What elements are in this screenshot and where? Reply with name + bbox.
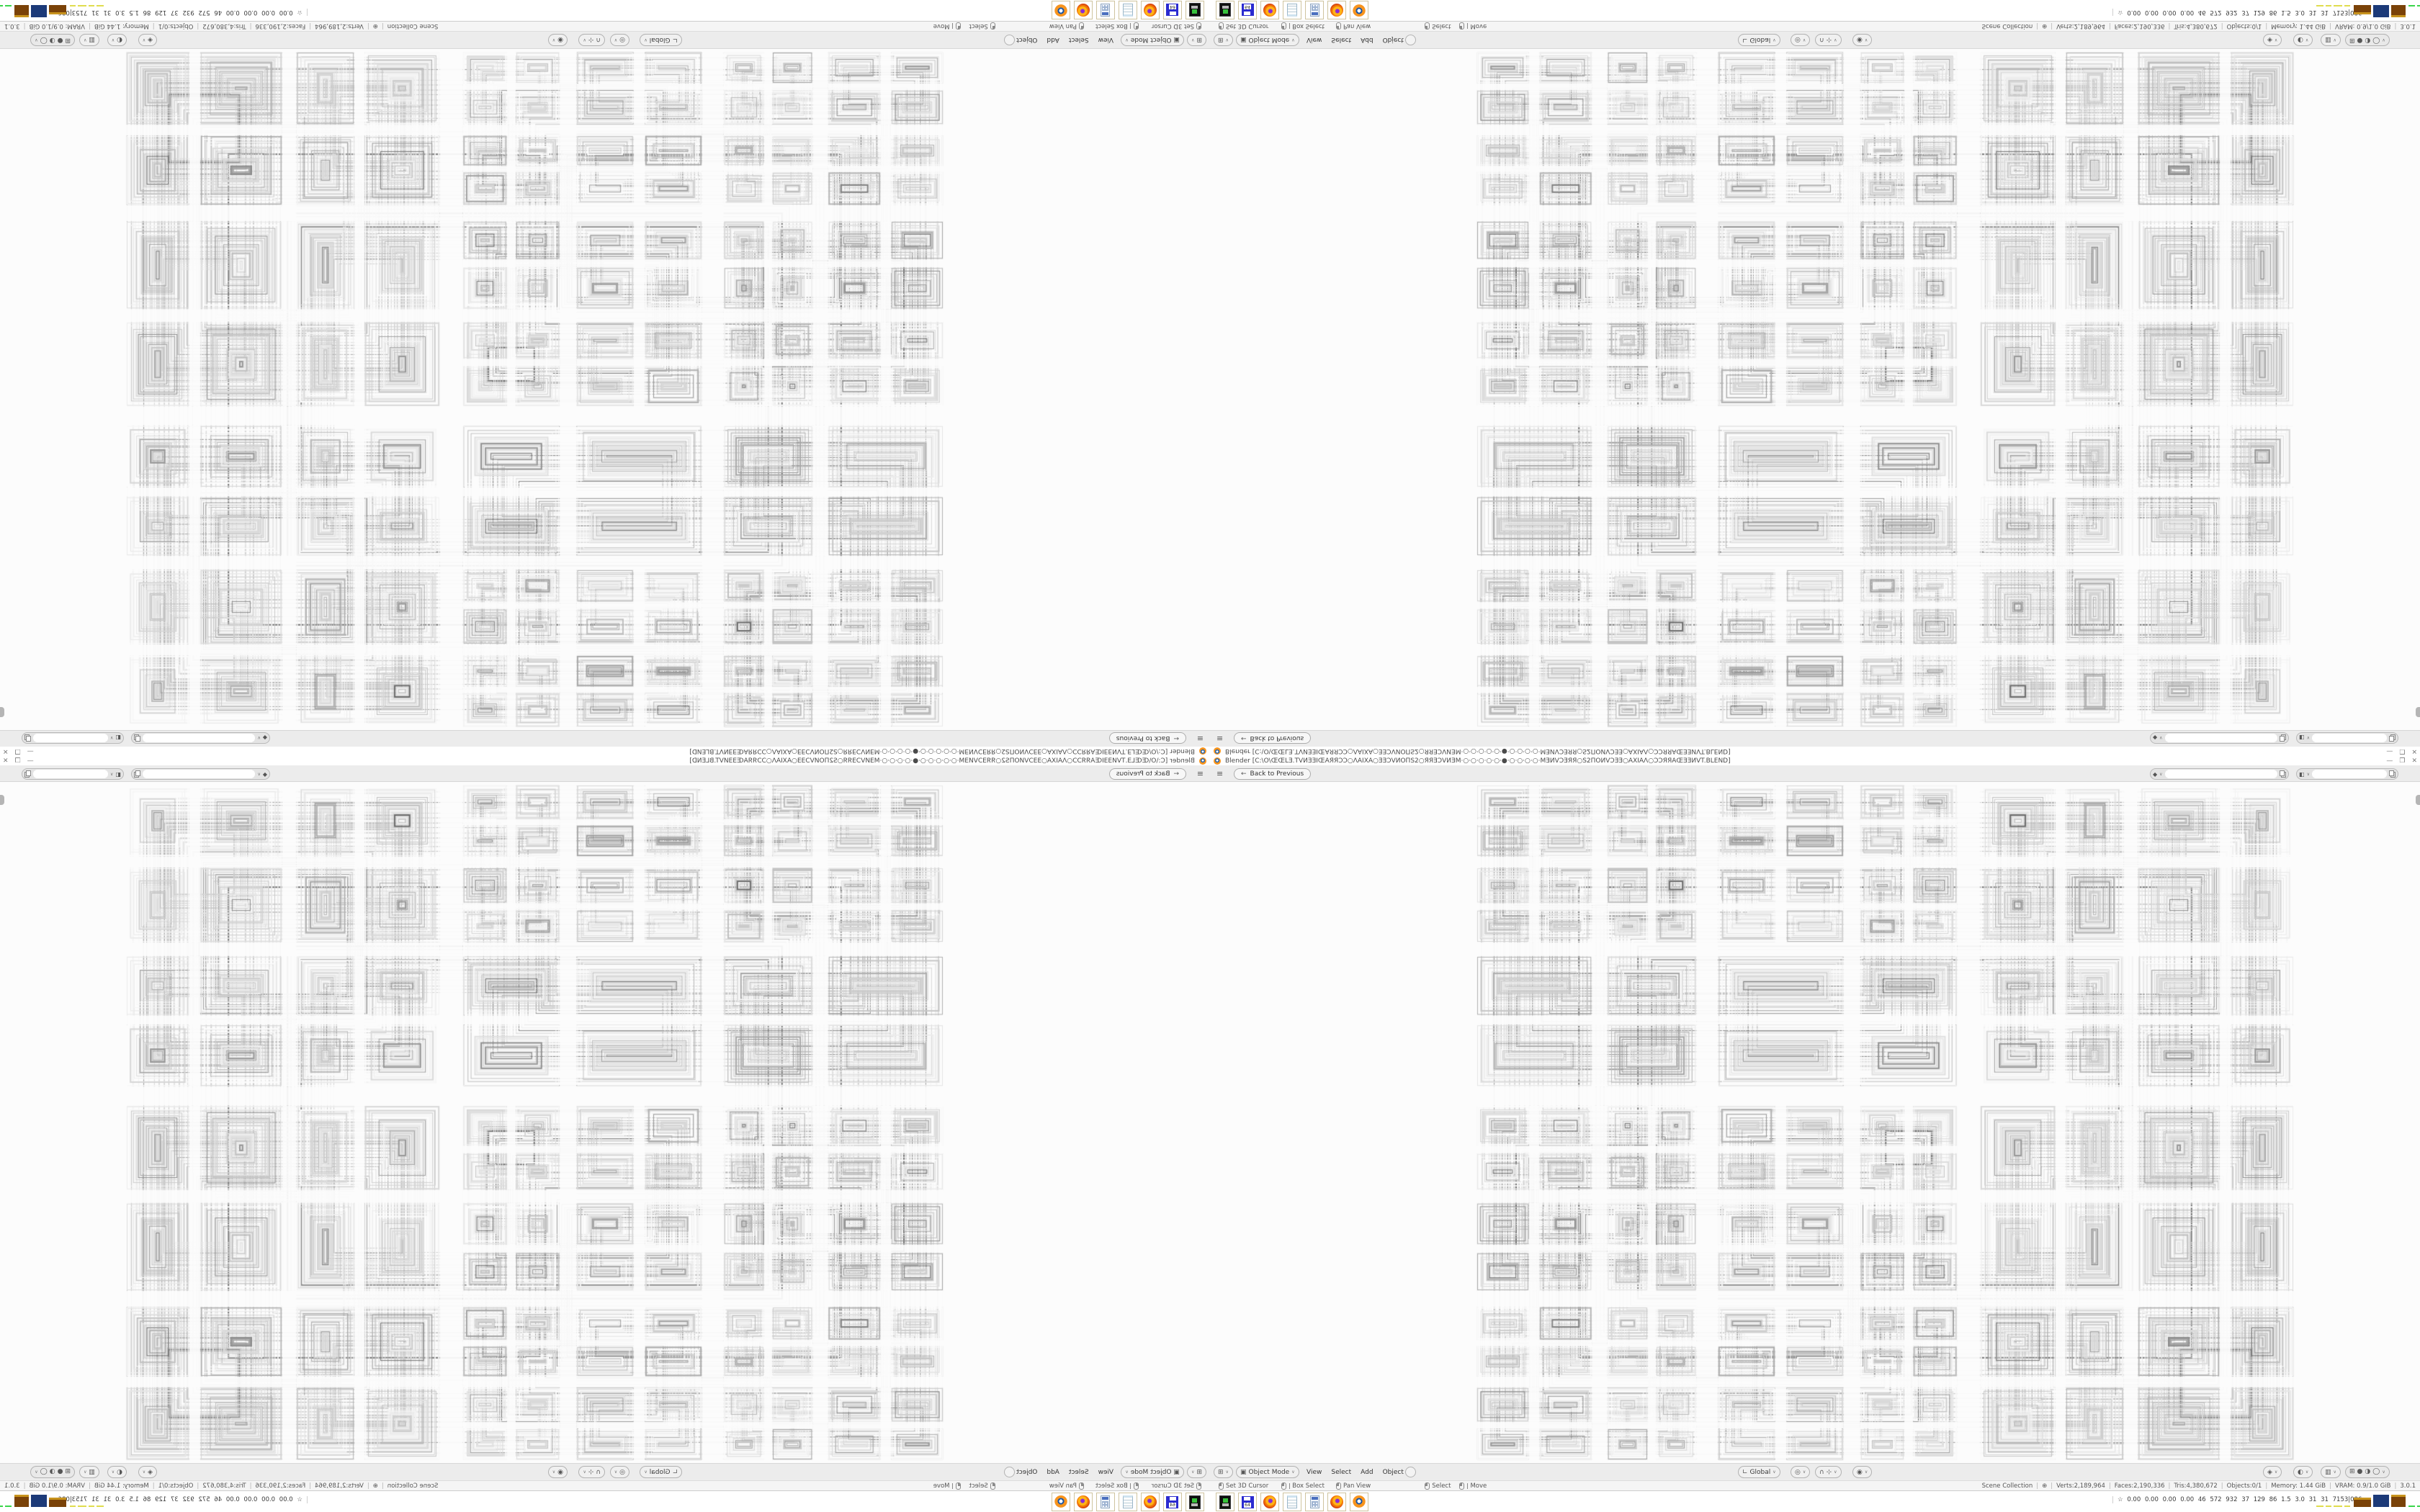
notepad-icon[interactable] — [1119, 1493, 1137, 1511]
shading-mode-1-button[interactable]: ● — [2357, 34, 2363, 46]
restore-button[interactable]: ❐ — [2399, 746, 2405, 756]
viewport-menu-select[interactable]: Select — [1069, 36, 1089, 43]
console-icon[interactable] — [1216, 1, 1234, 19]
viewport-header: ⊞ ∨ ▣ Object Mode ∨ ViewSelectAddObject … — [1210, 32, 2420, 49]
console-icon[interactable] — [1186, 1493, 1204, 1511]
chevron-down-icon: ∨ — [1191, 37, 1194, 42]
copy-icon[interactable] — [2389, 770, 2396, 778]
magnet-icon: ∩ — [596, 1469, 601, 1476]
chevron-down-icon: ∨ — [257, 736, 260, 741]
overlays-icon: ◐ — [2298, 1469, 2303, 1476]
stat-segment: Verts:2,189,964 — [2056, 1482, 2105, 1490]
xray-toggle-button[interactable]: ▥ ∨ — [2321, 1466, 2341, 1478]
calculator-icon[interactable] — [1305, 1, 1324, 19]
view-layer-selector[interactable]: ◧ ∨ — [22, 768, 124, 780]
scene-name-input[interactable] — [143, 770, 255, 778]
keymap-hint: Move — [1459, 22, 1487, 30]
pivot-icon: ◎ — [1795, 1469, 1801, 1476]
transform-orientation-dropdown[interactable]: ∟ Global ∨ — [1738, 34, 1780, 46]
snapping-button[interactable]: ∩ ⊹ ∨ — [578, 34, 605, 46]
copy-icon[interactable] — [24, 770, 31, 778]
usage-graph-bar — [0, 5, 3, 6]
blender-icon — [1353, 4, 1366, 17]
viewport-3d[interactable] — [0, 49, 1210, 730]
shading-mode-0-button[interactable]: ⊞ — [2349, 1466, 2355, 1478]
scene-selector[interactable]: ◆ ∨ — [2150, 768, 2289, 780]
xray-toggle-button[interactable]: ▥ ∨ — [2321, 34, 2341, 46]
viewport-3d[interactable] — [1210, 49, 2420, 730]
keymap-hint-label: Move — [933, 1482, 950, 1490]
scene-name-input[interactable] — [143, 734, 255, 742]
scene-name-input[interactable] — [2165, 734, 2277, 742]
mouse-button-icon — [990, 1482, 995, 1490]
editor-type-button[interactable]: ⊞ ∨ — [1214, 34, 1233, 46]
close-button[interactable]: ✕ — [3, 746, 9, 756]
system-tray-graph — [2316, 5, 2420, 17]
stat-separator: | — [250, 1482, 252, 1490]
window-titlebar[interactable]: Blender [C:\O\ŒŒLƎ.TVИƎƎIŒAЯЯƆƆ○ΛAIXA○ƎƎ… — [0, 746, 1210, 756]
console-icon[interactable] — [1186, 1, 1204, 19]
transform-orientation-dropdown[interactable]: ∟ Global ∨ — [640, 1466, 682, 1478]
mouse-button-icon — [1336, 1482, 1341, 1490]
system-tray-graph — [0, 5, 104, 17]
grease-pencil-circle-button[interactable] — [1004, 1467, 1015, 1477]
floppy-64-icon[interactable]: 64 — [1163, 1493, 1182, 1511]
overlays-button[interactable]: ◐ ∨ — [107, 1466, 127, 1478]
stat-segment: ⊕ — [2042, 22, 2047, 30]
usage-graph-bar — [2408, 5, 2415, 6]
mouse-button-icon — [1425, 1482, 1430, 1490]
grease-pencil-circle-button[interactable] — [1405, 35, 1416, 45]
pivot-point-button[interactable]: ◎ ∨ — [1791, 1466, 1810, 1478]
proportional-icon: ◉ — [1857, 1469, 1863, 1476]
chevron-down-icon: ∨ — [644, 1470, 647, 1475]
shading-mode-3-button[interactable]: ◯ — [40, 34, 48, 46]
keymap-hint-label: Box Select — [1292, 22, 1325, 30]
copy-icon[interactable] — [2389, 734, 2396, 742]
blender-window: Blender [C:\O\ŒŒLƎ.TVИƎƎIŒAЯЯƆƆ○ΛAIXA○ƎƎ… — [1210, 756, 2420, 1512]
stat-segment: Memory: 1.44 GiB — [2271, 1482, 2326, 1490]
proportional-edit-button[interactable]: ◉ ∨ — [1852, 34, 1872, 46]
taskbar: 64 ☆ 0.00 0.00 0.00 0.00 46 572 932 37 1… — [1210, 0, 2420, 22]
usage-graph-bar — [2334, 5, 2342, 6]
notepad-icon[interactable] — [1119, 1, 1137, 19]
fullscreen-header-row: ≡ ← Back to Previous ◆ ∨ ◧ ∨ — [1210, 730, 2420, 746]
window-titlebar[interactable]: Blender [C:\O\ŒŒLƎ.TVИƎƎIŒAЯЯƆƆ○ΛAIXA○ƎƎ… — [1210, 746, 2420, 756]
mode-dropdown[interactable]: ▣ Object Mode ∨ — [1236, 1466, 1299, 1478]
stat-separator: | — [2329, 1482, 2331, 1490]
chevron-down-icon: ∨ — [614, 37, 617, 42]
proportional-icon: ◉ — [557, 1469, 563, 1476]
minimize-button[interactable]: — — [27, 756, 34, 766]
mode-dropdown[interactable]: ▣ Object Mode ∨ — [1236, 34, 1299, 46]
copy-icon[interactable] — [134, 770, 140, 778]
firefox-icon — [1330, 1495, 1343, 1508]
floppy-64-icon[interactable]: 64 — [1238, 1493, 1257, 1511]
mouse-drag-icon — [1289, 23, 1290, 29]
stat-separator: | — [2329, 22, 2331, 30]
viewport-menu-view[interactable]: View — [1307, 1469, 1322, 1476]
blender-icon[interactable] — [1350, 1, 1368, 19]
gizmo-icon: ◈ — [2267, 37, 2272, 44]
chevron-down-icon: ∨ — [552, 37, 555, 42]
scene-stats: Scene Collection|⊕|Verts:2,189,964|Faces… — [4, 1481, 438, 1491]
copy-icon[interactable] — [24, 734, 31, 742]
stat-separator: | — [382, 1482, 384, 1490]
window-controls: — ❐ ✕ — [3, 756, 34, 766]
notepad-icon[interactable] — [1283, 1, 1301, 19]
sidebar-toggle-tab[interactable] — [0, 795, 4, 805]
pivot-point-button[interactable]: ◎ ∨ — [610, 1466, 629, 1478]
viewport-menu-object[interactable]: Object — [1383, 1469, 1404, 1476]
keymap-hint-label: Pan View — [1343, 22, 1371, 30]
viewport-menu-object[interactable]: Object — [1016, 1469, 1037, 1476]
view-layer-selector[interactable]: ◧ ∨ — [22, 732, 124, 744]
shading-mode-1-button[interactable]: ● — [58, 34, 63, 46]
stat-segment: Tris:4,380,672 — [2174, 22, 2217, 30]
viewport-menu-select[interactable]: Select — [1331, 36, 1351, 43]
mode-label: Object Mode — [1131, 1469, 1172, 1476]
mouse-button-icon — [1281, 1482, 1286, 1490]
shading-mode-2-button[interactable]: ◑ — [2365, 1466, 2370, 1478]
console-icon — [1189, 4, 1201, 17]
window-title: Blender [C:\O\ŒŒLƎ.TVИƎƎIŒAЯЯƆƆ○ΛAIXA○ƎƎ… — [689, 748, 1195, 755]
usage-graph-bar — [2344, 1506, 2350, 1507]
pivot-point-button[interactable]: ◎ ∨ — [610, 34, 629, 46]
blender-icon[interactable] — [1052, 1493, 1070, 1511]
usage-graph-bar — [49, 1498, 66, 1507]
back-to-previous-button[interactable]: ← Back to Previous — [1109, 768, 1186, 780]
overlays-button[interactable]: ◐ ∨ — [2293, 1466, 2313, 1478]
chevron-down-icon: ∨ — [257, 772, 260, 777]
mouse-button-icon — [990, 22, 995, 30]
back-to-previous-label: Back to Previous — [1116, 734, 1170, 742]
floppy-64-icon: 64 — [1167, 1496, 1179, 1508]
menu-icon[interactable]: ≡ — [1216, 734, 1223, 743]
stat-segment: Faces:2,190,336 — [255, 1482, 305, 1490]
floppy-label: 64 — [1244, 1503, 1251, 1508]
keymap-hint-label: Select — [1432, 1482, 1451, 1490]
shading-mode-group: ⊞●◑◯∨ — [2345, 34, 2390, 46]
keymap-hint-label: Select — [969, 1482, 988, 1490]
scene-name-input[interactable] — [2165, 770, 2277, 778]
snapping-button[interactable]: ∩ ⊹ ∨ — [1815, 34, 1842, 46]
chevron-down-icon: ∨ — [2305, 37, 2308, 42]
editor-type-button[interactable]: ⊞ ∨ — [1214, 1466, 1233, 1478]
orientation-icon: ∟ — [1742, 1469, 1748, 1476]
shading-mode-0-button[interactable]: ⊞ — [2349, 34, 2355, 46]
transform-orientation-dropdown[interactable]: ∟ Global ∨ — [1738, 1466, 1780, 1478]
calculator-icon[interactable] — [1096, 1, 1115, 19]
editor-type-button[interactable]: ⊞ ∨ — [1187, 34, 1206, 46]
notepad-icon[interactable] — [1283, 1493, 1301, 1511]
copy-icon[interactable] — [2280, 770, 2286, 778]
usage-graph-bar — [2373, 5, 2389, 17]
mouse-button-icon — [1219, 22, 1224, 30]
shading-mode-3-button[interactable]: ◯ — [2372, 1466, 2380, 1478]
viewport-menu-select[interactable]: Select — [1069, 1469, 1089, 1476]
chevron-down-icon: ∨ — [1803, 1470, 1806, 1475]
minimize-button[interactable]: — — [27, 746, 34, 756]
back-to-previous-button[interactable]: ← Back to Previous — [1234, 768, 1311, 780]
viewport-menu-add[interactable]: Add — [1047, 1469, 1059, 1476]
viewport-menus: ViewSelectAddObject — [1307, 1464, 1404, 1481]
stat-segment: Verts:2,189,964 — [315, 1482, 364, 1490]
keymap-hint-label: Set 3D Cursor — [1226, 22, 1268, 30]
show-gizmo-button[interactable]: ◈ ∨ — [138, 34, 157, 46]
firefox-icon[interactable] — [1141, 1493, 1160, 1511]
keymap-hint-label: Select — [1432, 22, 1451, 30]
snapping-button[interactable]: ∩ ⊹ ∨ — [1815, 1466, 1842, 1478]
firefox-icon[interactable] — [1260, 1493, 1279, 1511]
stat-segment: ⊕ — [2042, 1482, 2047, 1490]
overlays-icon: ◐ — [2298, 37, 2303, 44]
orientation-label: Global — [650, 37, 671, 44]
mode-label: Object Mode — [1249, 1469, 1290, 1476]
sidebar-toggle-tab[interactable] — [0, 707, 4, 717]
stat-separator: | — [2051, 22, 2053, 30]
firefox-icon — [1144, 4, 1157, 17]
window-copy-top-left-rotated: Blender [C:\O\ŒŒLƎ.TVИƎƎIŒAЯЯƆƆ○ΛAIXA○ƎƎ… — [0, 0, 1210, 756]
xray-icon: ▥ — [89, 1469, 95, 1476]
view-layer-selector[interactable]: ◧ ∨ — [2296, 732, 2398, 744]
snap-target-icon: ⊹ — [588, 37, 594, 44]
usage-graph-bar — [70, 5, 76, 6]
xray-icon: ▥ — [89, 37, 95, 44]
view-layer-input[interactable] — [2312, 734, 2387, 742]
firefox-icon[interactable] — [1074, 1, 1093, 19]
chevron-down-icon: ∨ — [2307, 736, 2310, 741]
floppy-label: 64 — [1169, 5, 1176, 10]
scene-selector[interactable]: ◆ ∨ — [2150, 732, 2289, 744]
mode-dropdown[interactable]: ▣ Object Mode ∨ — [1121, 34, 1184, 46]
object-mode-icon: ▣ — [1173, 1469, 1180, 1476]
keymap-hint-label: Box Select — [1095, 1482, 1128, 1490]
object-mode-icon: ▣ — [1240, 1469, 1247, 1476]
view-layer-input[interactable] — [33, 734, 108, 742]
viewport-menu-add[interactable]: Add — [1361, 36, 1373, 43]
viewport-3d[interactable] — [1210, 782, 2420, 1463]
keymap-hint-label: Move — [1470, 1482, 1487, 1490]
calculator-icon[interactable] — [1096, 1493, 1115, 1511]
firefox-icon — [1077, 4, 1090, 17]
notepad-icon — [1287, 4, 1297, 17]
grease-pencil-circle-button[interactable] — [1004, 35, 1015, 45]
magnet-icon: ∩ — [596, 37, 601, 44]
show-gizmo-button[interactable]: ◈ ∨ — [2263, 34, 2282, 46]
shading-mode-1-button[interactable]: ● — [2357, 1466, 2363, 1478]
transform-orientation-dropdown[interactable]: ∟ Global ∨ — [640, 34, 682, 46]
fullscreen-header-row: ≡ ← Back to Previous ◆ ∨ ◧ ∨ — [0, 730, 1210, 746]
floppy-64-icon[interactable]: 64 — [1163, 1, 1182, 19]
menu-icon[interactable]: ≡ — [1216, 769, 1223, 778]
view-layer-input[interactable] — [2312, 770, 2387, 778]
usage-graph-bar — [2391, 5, 2406, 17]
view-layer-selector[interactable]: ◧ ∨ — [2296, 768, 2398, 780]
firefox-icon[interactable] — [1260, 1, 1279, 19]
blender-logo-icon — [1199, 757, 1206, 765]
shading-mode-1-button[interactable]: ● — [58, 1466, 63, 1478]
view-layer-input[interactable] — [33, 770, 108, 778]
pivot-icon: ◎ — [619, 1469, 625, 1476]
chevron-down-icon: ∨ — [1291, 37, 1294, 42]
keymap-hint: Set 3D Cursor — [1219, 1482, 1268, 1490]
viewport-menus: ViewSelectAddObject — [1307, 31, 1404, 48]
scene-selector[interactable]: ◆ ∨ — [131, 732, 270, 744]
orientation-label: Global — [1750, 37, 1771, 44]
shading-mode-2-button[interactable]: ◑ — [50, 34, 55, 46]
minimize-button[interactable]: — — [2386, 756, 2393, 766]
blender-window: Blender [C:\O\ŒŒLƎ.TVИƎƎIŒAЯЯƆƆ○ΛAIXA○ƎƎ… — [0, 756, 1210, 1512]
usage-graph-bar — [70, 1506, 76, 1507]
chevron-down-icon: ∨ — [110, 772, 113, 777]
mode-dropdown[interactable]: ▣ Object Mode ∨ — [1121, 1466, 1184, 1478]
viewport-editor-icon: ⊞ — [1218, 1469, 1224, 1476]
chevron-down-icon: ∨ — [2382, 1470, 2385, 1475]
usage-graph-bar — [78, 1506, 86, 1507]
back-to-previous-label: Back to Previous — [1116, 770, 1170, 778]
mouse-drag-icon — [1130, 1483, 1131, 1489]
chevron-down-icon: ∨ — [1226, 37, 1229, 42]
pivot-point-button[interactable]: ◎ ∨ — [1791, 34, 1810, 46]
editor-type-button[interactable]: ⊞ ∨ — [1187, 1466, 1206, 1478]
window-titlebar[interactable]: Blender [C:\O\ŒŒLƎ.TVИƎƎIŒAЯЯƆƆ○ΛAIXA○ƎƎ… — [1210, 756, 2420, 766]
shading-mode-0-button[interactable]: ⊞ — [65, 34, 71, 46]
viewport-render-canvas[interactable] — [0, 49, 1210, 730]
keymap-hint-label: Move — [1470, 22, 1487, 30]
viewport-menu-object[interactable]: Object — [1016, 36, 1037, 43]
minimize-button[interactable]: — — [2386, 746, 2393, 756]
overlays-icon: ◐ — [117, 1469, 122, 1476]
snapping-button[interactable]: ∩ ⊹ ∨ — [578, 1466, 605, 1478]
usage-graph-bar — [89, 1506, 94, 1507]
viewport-menu-object[interactable]: Object — [1383, 36, 1404, 43]
chevron-down-icon: ∨ — [1865, 37, 1868, 42]
viewport-menu-add[interactable]: Add — [1047, 36, 1059, 43]
proportional-edit-button[interactable]: ◉ ∨ — [1852, 1466, 1872, 1478]
window-title: Blender [C:\O\ŒŒLƎ.TVИƎƎIŒAЯЯƆƆ○ΛAIXA○ƎƎ… — [1225, 757, 1731, 765]
sidebar-toggle-tab[interactable] — [2416, 707, 2420, 717]
shading-mode-2-button[interactable]: ◑ — [50, 1466, 55, 1478]
keymap-hint: Pan View — [1049, 1482, 1084, 1490]
viewport-menu-select[interactable]: Select — [1331, 1469, 1351, 1476]
menu-icon[interactable]: ≡ — [1197, 734, 1204, 743]
grease-pencil-circle-button[interactable] — [1405, 1467, 1416, 1477]
close-button[interactable]: ✕ — [2411, 756, 2417, 766]
calculator-icon — [1101, 1495, 1111, 1508]
show-gizmo-button[interactable]: ◈ ∨ — [2263, 1466, 2282, 1478]
viewport-menu-add[interactable]: Add — [1361, 1469, 1373, 1476]
stat-segment: 3.0.1 — [4, 22, 20, 30]
menu-icon[interactable]: ≡ — [1197, 769, 1204, 778]
xray-toggle-button[interactable]: ▥ ∨ — [79, 34, 99, 46]
chevron-down-icon: ∨ — [1773, 1470, 1775, 1475]
firefox-icon[interactable] — [1141, 1, 1160, 19]
scene-icon: ◆ — [2153, 771, 2157, 778]
stat-separator: | — [2265, 22, 2267, 30]
overlays-button[interactable]: ◐ ∨ — [2293, 34, 2313, 46]
restore-button[interactable]: ❐ — [15, 756, 21, 766]
stat-segment: Faces:2,190,336 — [2115, 1482, 2165, 1490]
overlays-button[interactable]: ◐ ∨ — [107, 34, 127, 46]
object-mode-icon: ▣ — [1240, 37, 1247, 44]
keymap-hints: Set 3D CursorBox SelectPan ViewSelectMov… — [1216, 21, 1487, 31]
chevron-down-icon: ∨ — [84, 1470, 86, 1475]
chevron-down-icon: ∨ — [1834, 37, 1837, 42]
viewport-menu-view[interactable]: View — [1098, 1469, 1113, 1476]
blender-logo-icon — [1199, 748, 1206, 755]
shading-mode-0-button[interactable]: ⊞ — [65, 1466, 71, 1478]
usage-graph-bar — [49, 5, 66, 14]
firefox-icon[interactable] — [1074, 1493, 1093, 1511]
magnet-icon: ∩ — [1819, 1469, 1824, 1476]
keymap-hint-label: Select — [969, 22, 988, 30]
viewport-render-canvas[interactable] — [1210, 49, 2420, 730]
stat-separator: | — [89, 1482, 91, 1490]
restore-button[interactable]: ❐ — [15, 746, 21, 756]
viewport-menu-view[interactable]: View — [1307, 36, 1322, 43]
usage-graph-bar — [97, 1506, 104, 1507]
viewport-3d[interactable] — [0, 782, 1210, 1463]
shading-mode-3-button[interactable]: ◯ — [40, 1466, 48, 1478]
keymap-hint: Select — [969, 1482, 995, 1490]
viewport-menu-view[interactable]: View — [1098, 36, 1113, 43]
copy-icon[interactable] — [2280, 734, 2286, 742]
restore-button[interactable]: ❐ — [2399, 756, 2405, 766]
back-to-previous-button[interactable]: ← Back to Previous — [1109, 732, 1186, 744]
pivot-icon: ◎ — [619, 37, 625, 44]
blender-icon[interactable] — [1350, 1493, 1368, 1511]
chevron-down-icon: ∨ — [2334, 1470, 2336, 1475]
viewport-editor-icon: ⊞ — [1196, 37, 1202, 44]
shading-mode-3-button[interactable]: ◯ — [2372, 34, 2380, 46]
shading-mode-2-button[interactable]: ◑ — [2365, 34, 2370, 46]
calculator-icon[interactable] — [1305, 1493, 1324, 1511]
mouse-button-icon — [1079, 1482, 1084, 1490]
mouse-button-icon — [1281, 22, 1286, 30]
usage-graph-bar — [31, 5, 47, 17]
floppy-label: 64 — [1169, 1503, 1176, 1508]
show-gizmo-button[interactable]: ◈ ∨ — [138, 1466, 157, 1478]
xray-toggle-button[interactable]: ▥ ∨ — [79, 1466, 99, 1478]
usage-graph-bar — [14, 5, 29, 17]
floppy-64-icon[interactable]: 64 — [1238, 1, 1257, 19]
viewport-render-canvas[interactable] — [1210, 782, 2420, 1463]
viewport-render-canvas[interactable] — [0, 782, 1210, 1463]
firefox-icon[interactable] — [1327, 1, 1346, 19]
firefox-icon[interactable] — [1327, 1493, 1346, 1511]
keymap-hint-label: Set 3D Cursor — [1152, 22, 1194, 30]
mouse-drag-icon — [952, 23, 953, 29]
stat-segment: VRAM: 0.9/1.0 GiB — [30, 1482, 85, 1490]
stat-segment: Tris:4,380,672 — [202, 1482, 246, 1490]
usage-graph-bar — [2373, 1495, 2389, 1507]
taskbar: 64 ☆ 0.00 0.00 0.00 0.00 46 572 932 37 1… — [0, 0, 1210, 22]
scene-selector[interactable]: ◆ ∨ — [131, 768, 270, 780]
mouse-drag-icon — [952, 1483, 953, 1489]
window-titlebar[interactable]: Blender [C:\O\ŒŒLƎ.TVИƎƎIŒAЯЯƆƆ○ΛAIXA○ƎƎ… — [0, 756, 1210, 766]
copy-icon[interactable] — [134, 734, 140, 742]
back-to-previous-button[interactable]: ← Back to Previous — [1234, 732, 1311, 744]
sidebar-toggle-tab[interactable] — [2416, 795, 2420, 805]
chevron-down-icon: ∨ — [112, 1470, 115, 1475]
console-icon[interactable] — [1216, 1493, 1234, 1511]
close-button[interactable]: ✕ — [2411, 746, 2417, 756]
close-button[interactable]: ✕ — [3, 756, 9, 766]
proportional-edit-button[interactable]: ◉ ∨ — [548, 1466, 568, 1478]
proportional-edit-button[interactable]: ◉ ∨ — [548, 34, 568, 46]
blender-icon[interactable] — [1052, 1, 1070, 19]
